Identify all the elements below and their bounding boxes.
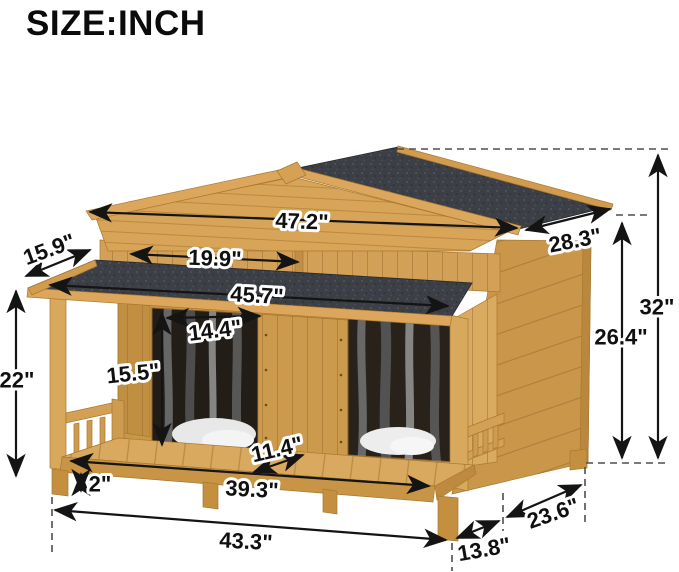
dim-house-depth: 23.6": [507, 485, 582, 534]
dim-label-floor-clearance: 2": [89, 472, 112, 497]
product-dimension-diagram: SIZE:INCH: [0, 0, 679, 572]
dim-label-side-wall-height: 26.4": [594, 325, 647, 350]
dim-floor-clearance: 2": [81, 472, 111, 497]
dim-overall-height: 32": [640, 155, 675, 458]
center-wall-pier: [258, 314, 348, 456]
left-corner-post: [50, 296, 66, 470]
dim-label-porch-depth: 13.8": [456, 532, 513, 566]
dim-label-overall-width: 43.3": [219, 527, 273, 555]
house: [27, 146, 613, 541]
dim-label-porch-floor-width: 39.3": [225, 475, 279, 503]
right-doorway: [348, 315, 455, 465]
dim-label-porch-roof-width: 45.7": [230, 281, 284, 309]
dim-porch-depth: 13.8": [456, 521, 513, 566]
dim-label-left-roof-section: 19.9": [188, 245, 242, 272]
dim-label-house-depth: 23.6": [524, 493, 582, 534]
dim-label-porch-eave-height: 22": [0, 368, 34, 393]
mid-left-leg: [203, 482, 218, 509]
dim-label-roof-width: 47.2": [275, 208, 329, 235]
dim-porch-eave-height: 22": [0, 291, 34, 476]
dim-label-overall-height: 32": [640, 295, 675, 320]
front-left-leg: [52, 469, 68, 496]
mid-right-leg: [323, 489, 337, 514]
dim-side-wall-height: 26.4": [594, 223, 647, 458]
dim-label-porch-roof-overhang: 15.9": [20, 228, 79, 270]
dim-overall-width: 43.3": [55, 510, 446, 555]
dim-label-roof-panel-depth: 28.3": [547, 223, 604, 258]
back-right-leg: [570, 449, 587, 470]
front-right-leg: [438, 496, 458, 541]
dog-house-illustration: 47.2" 28.3" 15.9" 19.9" 45.7" 14.4": [0, 0, 679, 572]
